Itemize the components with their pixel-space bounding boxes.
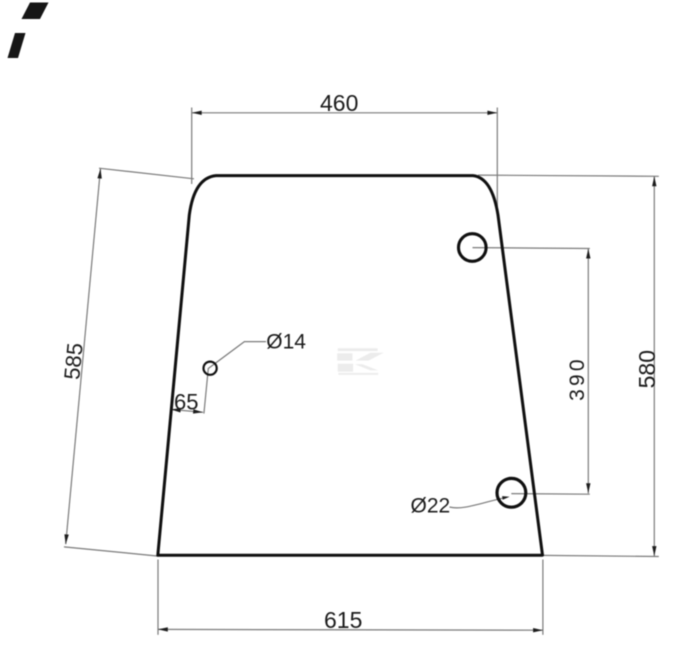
svg-text:460: 460	[320, 90, 358, 116]
svg-text:390: 390	[566, 356, 589, 401]
svg-text:Ø14: Ø14	[266, 330, 306, 353]
svg-text:580: 580	[634, 350, 660, 388]
svg-text:615: 615	[324, 607, 362, 633]
svg-text:65: 65	[174, 390, 198, 415]
svg-text:Ø22: Ø22	[411, 495, 451, 518]
svg-text:585: 585	[59, 342, 87, 381]
